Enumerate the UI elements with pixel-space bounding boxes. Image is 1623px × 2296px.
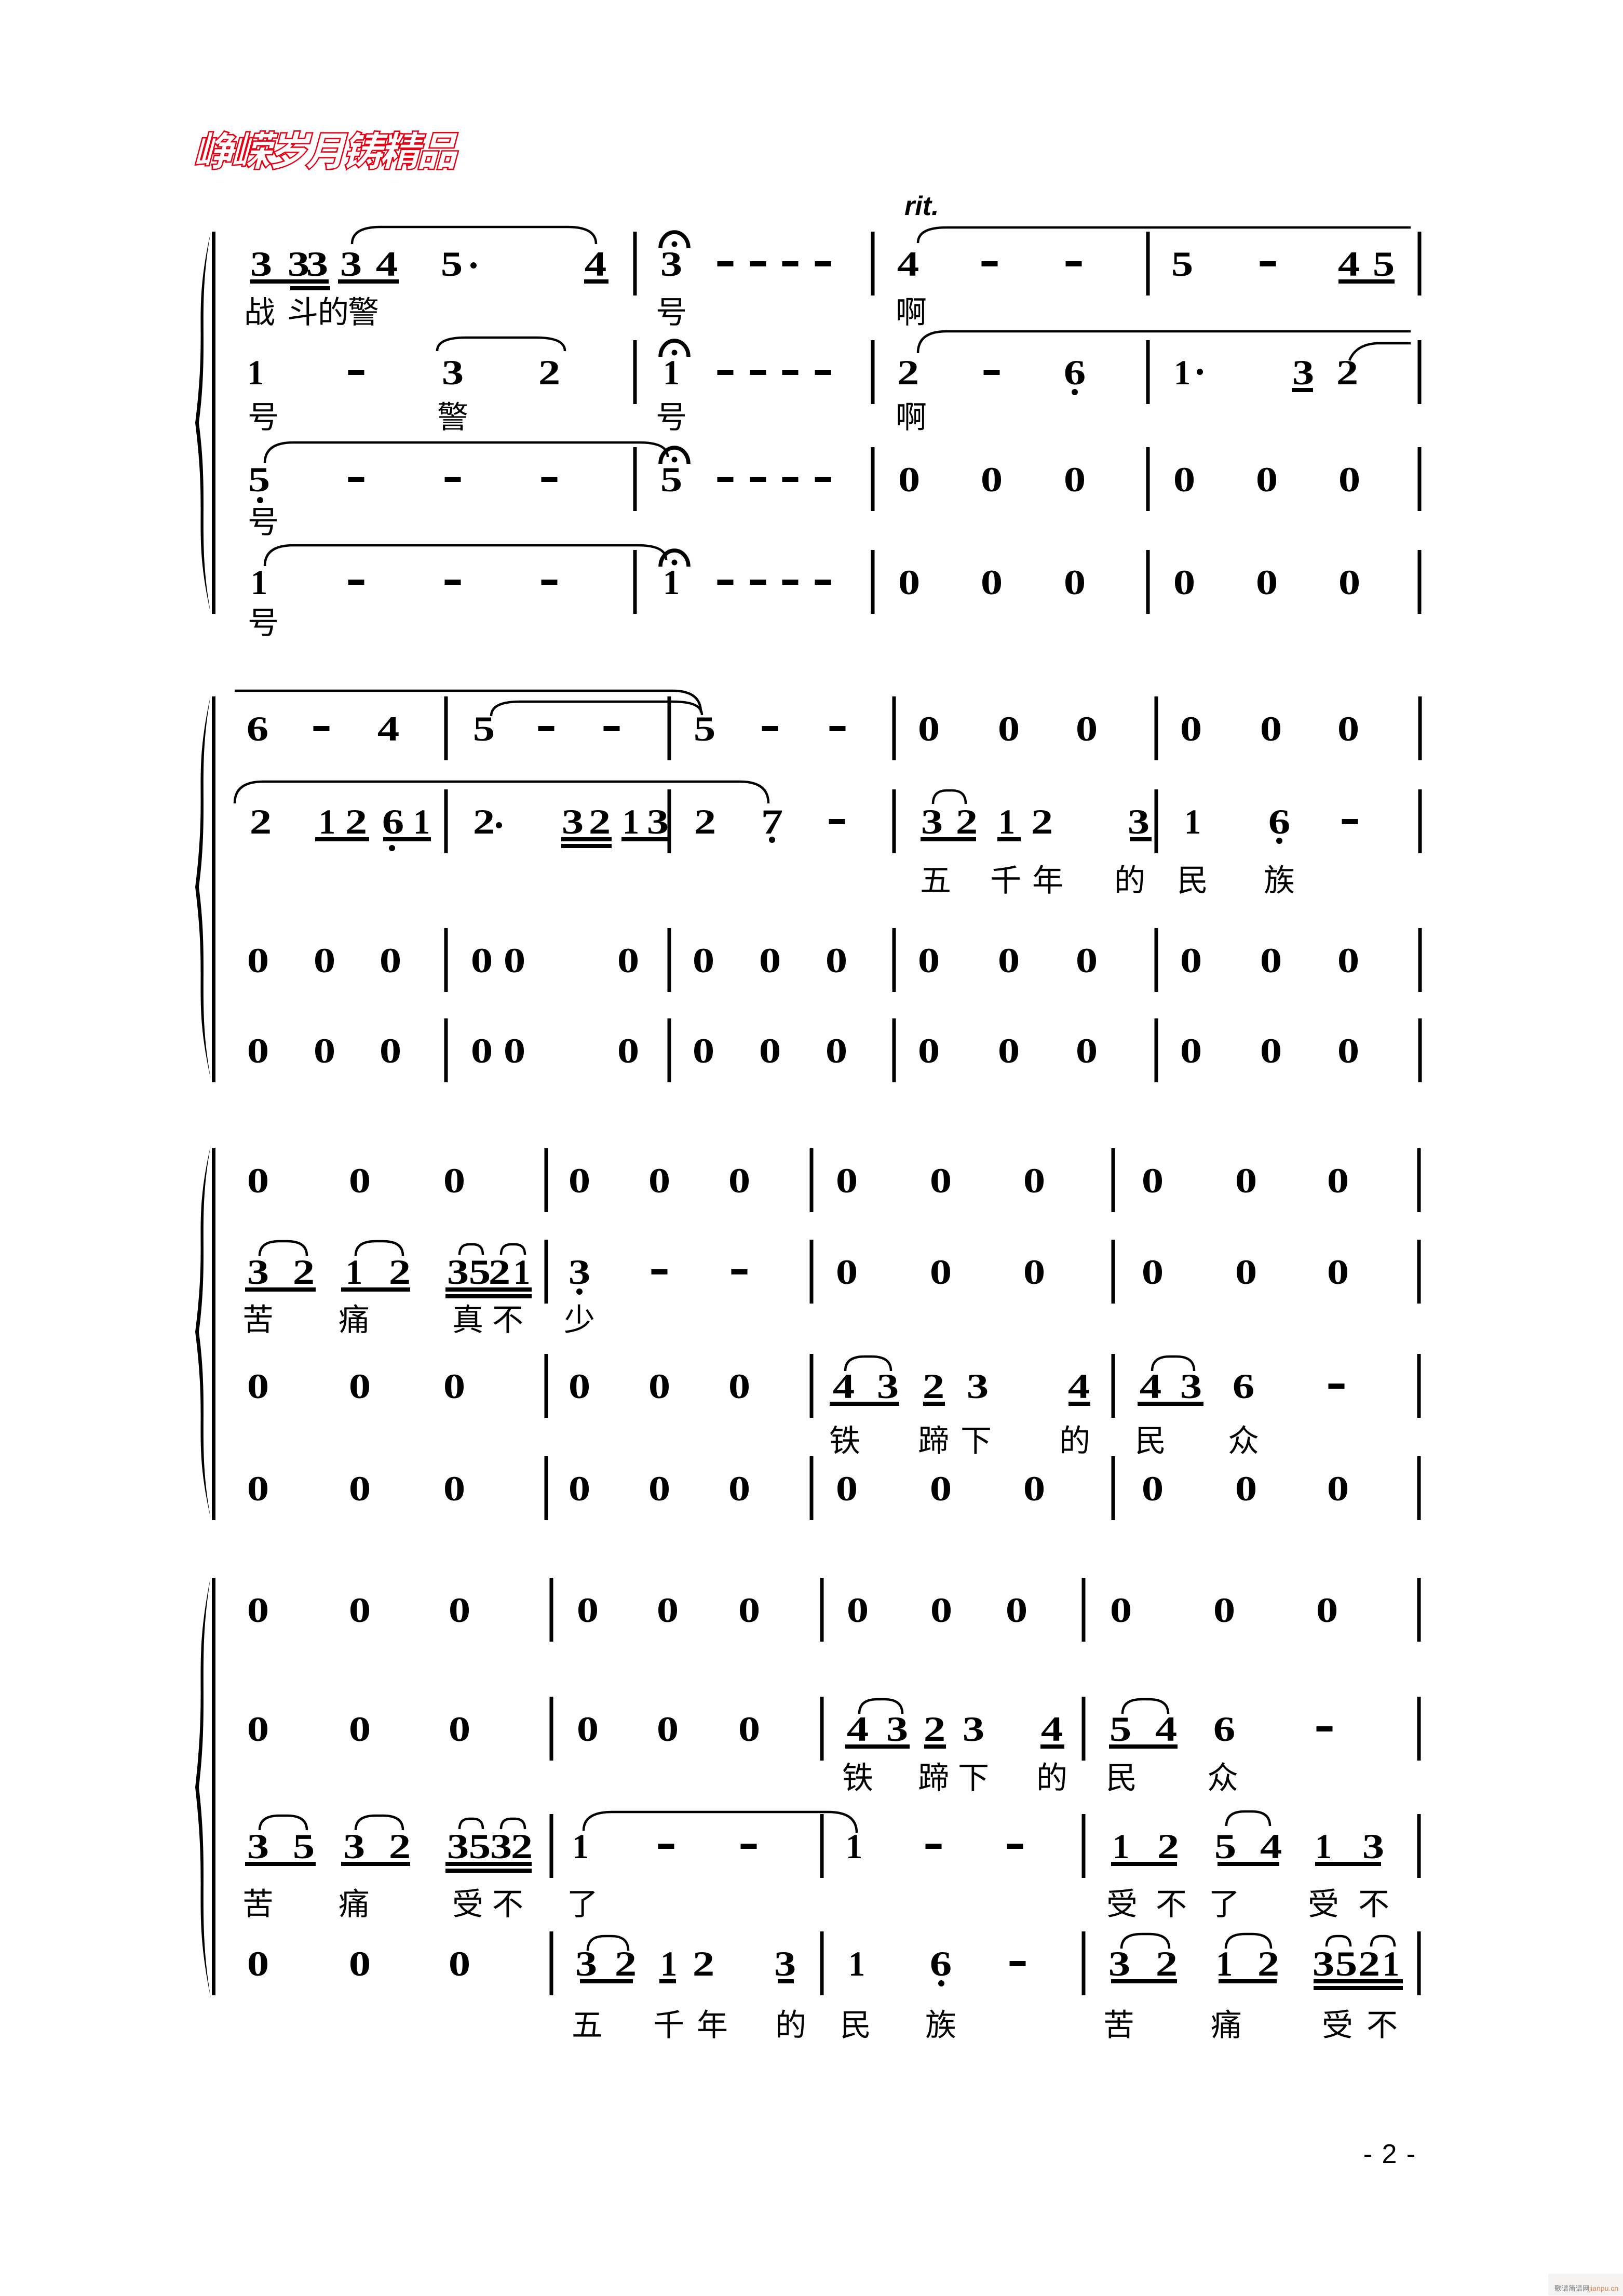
svg-text:5: 5 (441, 244, 463, 284)
svg-text:5: 5 (469, 1252, 491, 1292)
svg-text:0: 0 (898, 460, 920, 499)
svg-text:1: 1 (346, 1253, 362, 1292)
svg-text:2: 2 (389, 1827, 411, 1866)
svg-text:0: 0 (569, 1161, 590, 1200)
svg-text:1: 1 (251, 563, 267, 602)
svg-text:1: 1 (846, 1828, 862, 1867)
svg-text:0: 0 (918, 1031, 940, 1070)
svg-text:3: 3 (1128, 802, 1149, 841)
svg-text:0: 0 (759, 1031, 781, 1070)
svg-text:0: 0 (449, 1944, 470, 1983)
svg-text:2: 2 (345, 802, 367, 841)
svg-text:0: 0 (759, 941, 781, 980)
svg-text:0: 0 (247, 1944, 269, 1983)
svg-text:3: 3 (343, 1827, 365, 1866)
svg-text:3: 3 (575, 1944, 597, 1983)
svg-text:0: 0 (1006, 1590, 1027, 1630)
svg-text:0: 0 (449, 1590, 470, 1630)
svg-text:6: 6 (1213, 1709, 1235, 1749)
svg-text:5: 5 (694, 709, 715, 748)
svg-text:0: 0 (380, 1031, 401, 1070)
svg-text:0: 0 (657, 1709, 679, 1749)
svg-text:3: 3 (247, 1252, 269, 1292)
svg-text:5: 5 (1110, 1709, 1131, 1749)
svg-text:1: 1 (1383, 1945, 1399, 1984)
svg-text:0: 0 (1180, 941, 1202, 980)
svg-text:1: 1 (1184, 803, 1201, 842)
svg-text:6: 6 (382, 802, 404, 841)
svg-text:0: 0 (247, 1031, 269, 1070)
svg-text:3: 3 (1292, 353, 1314, 392)
svg-text:0: 0 (449, 1709, 470, 1749)
svg-text:0: 0 (471, 941, 493, 980)
svg-text:4: 4 (585, 244, 606, 284)
svg-text:0: 0 (998, 1031, 1020, 1070)
svg-text:3: 3 (1362, 1827, 1384, 1866)
svg-text:0: 0 (1337, 709, 1359, 748)
svg-text:0: 0 (1235, 1252, 1257, 1292)
svg-text:0: 0 (918, 709, 940, 748)
svg-text:2: 2 (538, 353, 560, 392)
svg-text:0: 0 (826, 1031, 847, 1070)
svg-text:4: 4 (376, 244, 398, 284)
svg-text:2: 2 (956, 802, 978, 841)
svg-text:3: 3 (1313, 1944, 1334, 1983)
svg-text:3: 3 (490, 1827, 512, 1866)
svg-text:0: 0 (1023, 1469, 1045, 1508)
svg-text:0: 0 (443, 1366, 465, 1406)
svg-text:0: 0 (1142, 1161, 1164, 1200)
svg-text:0: 0 (1180, 1031, 1202, 1070)
svg-text:0: 0 (349, 1469, 371, 1508)
svg-text:0: 0 (738, 1709, 760, 1749)
svg-text:jianpu.cn: jianpu.cn (1589, 2284, 1618, 2292)
svg-text:0: 0 (569, 1366, 590, 1406)
svg-text:0: 0 (930, 1469, 952, 1508)
svg-text:0: 0 (247, 1366, 269, 1406)
svg-text:0: 0 (1235, 1161, 1257, 1200)
svg-text:2: 2 (694, 802, 716, 841)
svg-text:0: 0 (349, 1944, 371, 1983)
svg-text:0: 0 (1064, 460, 1086, 499)
svg-text:1: 1 (660, 1945, 677, 1984)
svg-text:0: 0 (1142, 1252, 1164, 1292)
svg-text:1: 1 (1113, 1828, 1129, 1867)
svg-text:0: 0 (930, 1590, 952, 1630)
svg-text:0: 0 (1213, 1590, 1235, 1630)
svg-text:0: 0 (1076, 709, 1098, 748)
svg-text:3: 3 (340, 244, 362, 284)
svg-text:0: 0 (981, 460, 1003, 499)
svg-text:3: 3 (921, 802, 943, 841)
svg-text:3: 3 (660, 244, 682, 284)
svg-text:0: 0 (1337, 1031, 1359, 1070)
svg-text:0: 0 (443, 1469, 465, 1508)
svg-text:0: 0 (1076, 1031, 1098, 1070)
svg-text:2: 2 (473, 802, 495, 841)
svg-text:4: 4 (1155, 1709, 1177, 1749)
svg-text:2: 2 (693, 1944, 714, 1983)
svg-text:0: 0 (1338, 460, 1360, 499)
svg-text:0: 0 (1173, 562, 1195, 602)
svg-text:0: 0 (247, 1709, 269, 1749)
svg-text:0: 0 (349, 1366, 371, 1406)
svg-text:0: 0 (1316, 1590, 1338, 1630)
svg-text:1: 1 (413, 803, 430, 842)
svg-text:0: 0 (380, 941, 401, 980)
svg-text:3: 3 (647, 802, 669, 841)
svg-text:0: 0 (1256, 562, 1278, 602)
svg-text:0: 0 (1327, 1161, 1349, 1200)
svg-text:0: 0 (1260, 1031, 1282, 1070)
svg-text:1: 1 (848, 1945, 865, 1984)
svg-text:1: 1 (663, 354, 680, 393)
svg-text:4: 4 (377, 709, 399, 748)
svg-text:4: 4 (1140, 1366, 1161, 1406)
svg-text:0: 0 (981, 562, 1003, 602)
svg-text:0: 0 (349, 1161, 371, 1200)
svg-text:0: 0 (443, 1161, 465, 1200)
svg-text:5: 5 (469, 1827, 491, 1866)
svg-text:2: 2 (293, 1252, 315, 1292)
svg-text:3: 3 (306, 244, 328, 284)
svg-text:0: 0 (247, 1590, 269, 1630)
svg-text:6: 6 (1268, 802, 1290, 841)
svg-text:0: 0 (1064, 562, 1086, 602)
svg-text:0: 0 (569, 1469, 590, 1508)
svg-text:2: 2 (1031, 802, 1053, 841)
svg-text:2: 2 (250, 802, 272, 841)
svg-text:1: 1 (1216, 1945, 1233, 1984)
svg-text:0: 0 (836, 1469, 858, 1508)
svg-text:3: 3 (774, 1944, 796, 1983)
svg-text:2: 2 (1156, 1944, 1178, 1983)
svg-text:0: 0 (1327, 1252, 1349, 1292)
svg-text:0: 0 (1023, 1161, 1045, 1200)
svg-text:3: 3 (569, 1252, 590, 1292)
svg-text:0: 0 (918, 941, 940, 980)
svg-text:0: 0 (728, 1469, 750, 1508)
svg-text:0: 0 (738, 1590, 760, 1630)
svg-text:2: 2 (897, 353, 919, 392)
svg-text:0: 0 (898, 562, 920, 602)
svg-text:5: 5 (1214, 1827, 1236, 1866)
svg-text:5: 5 (293, 1827, 315, 1866)
svg-text:2: 2 (923, 1366, 944, 1406)
svg-text:0: 0 (504, 941, 525, 980)
svg-text:0: 0 (1256, 460, 1278, 499)
svg-text:0: 0 (1023, 1252, 1045, 1292)
svg-text:5: 5 (660, 460, 682, 499)
svg-text:0: 0 (998, 709, 1020, 748)
svg-text:2: 2 (589, 802, 611, 841)
svg-text:3: 3 (447, 1252, 469, 1292)
svg-text:0: 0 (1327, 1469, 1349, 1508)
svg-text:1: 1 (1315, 1828, 1332, 1867)
svg-text:2: 2 (389, 1252, 411, 1292)
svg-text:0: 0 (648, 1366, 670, 1406)
svg-text:5: 5 (1171, 244, 1193, 284)
svg-text:1: 1 (663, 563, 680, 602)
svg-text:1: 1 (1174, 354, 1191, 393)
svg-text:2: 2 (1358, 1944, 1380, 1983)
svg-text:0: 0 (349, 1590, 371, 1630)
svg-text:0: 0 (648, 1469, 670, 1508)
svg-text:3: 3 (562, 802, 584, 841)
svg-text:4: 4 (1068, 1366, 1090, 1406)
svg-text:6: 6 (930, 1944, 952, 1983)
svg-text:3: 3 (963, 1709, 984, 1749)
svg-text:0: 0 (314, 1031, 335, 1070)
svg-text:2: 2 (1336, 353, 1358, 392)
svg-text:3: 3 (442, 353, 464, 392)
svg-text:0: 0 (471, 1031, 493, 1070)
svg-text:0: 0 (1235, 1469, 1257, 1508)
svg-text:3: 3 (447, 1827, 469, 1866)
svg-text:1: 1 (572, 1828, 589, 1867)
svg-text:5: 5 (1335, 1944, 1357, 1983)
svg-text:3: 3 (1180, 1366, 1202, 1406)
svg-text:3: 3 (250, 244, 272, 284)
svg-text:0: 0 (1260, 709, 1282, 748)
svg-text:0: 0 (1173, 460, 1195, 499)
svg-text:4: 4 (833, 1366, 855, 1406)
svg-text:4: 4 (847, 1709, 869, 1749)
svg-text:7: 7 (761, 802, 783, 841)
svg-text:0: 0 (247, 1161, 269, 1200)
svg-text:0: 0 (836, 1161, 858, 1200)
svg-text:5: 5 (1373, 244, 1395, 284)
svg-text:3: 3 (877, 1366, 899, 1406)
svg-text:0: 0 (648, 1161, 670, 1200)
svg-text:2: 2 (489, 1252, 510, 1292)
svg-text:3: 3 (886, 1709, 908, 1749)
svg-text:1: 1 (513, 1253, 530, 1292)
svg-text:0: 0 (577, 1590, 599, 1630)
svg-text:2: 2 (511, 1827, 533, 1866)
svg-text:3: 3 (247, 1827, 269, 1866)
svg-text:0: 0 (657, 1590, 679, 1630)
svg-text:0: 0 (1260, 941, 1282, 980)
svg-text:2: 2 (615, 1944, 637, 1983)
svg-text:2: 2 (1157, 1827, 1179, 1866)
svg-text:4: 4 (897, 244, 919, 284)
svg-text:1: 1 (998, 803, 1015, 842)
svg-text:0: 0 (728, 1366, 750, 1406)
svg-text:0: 0 (504, 1031, 525, 1070)
svg-text:4: 4 (1338, 244, 1360, 284)
svg-text:0: 0 (1337, 941, 1359, 980)
svg-text:0: 0 (998, 941, 1020, 980)
svg-text:0: 0 (1076, 941, 1098, 980)
svg-text:0: 0 (693, 1031, 714, 1070)
svg-text:rit.: rit. (904, 191, 939, 221)
svg-text:6: 6 (1064, 353, 1086, 392)
svg-text:0: 0 (247, 1469, 269, 1508)
svg-text:1: 1 (623, 803, 639, 842)
svg-text:3: 3 (967, 1366, 989, 1406)
svg-text:0: 0 (1110, 1590, 1132, 1630)
svg-text:1: 1 (319, 803, 335, 842)
svg-text:2: 2 (1257, 1944, 1279, 1983)
svg-text:4: 4 (1041, 1709, 1063, 1749)
svg-text:0: 0 (577, 1709, 599, 1749)
svg-text:0: 0 (1338, 562, 1360, 602)
svg-text:6: 6 (1233, 1366, 1254, 1406)
svg-text:0: 0 (826, 941, 847, 980)
svg-text:0: 0 (728, 1161, 750, 1200)
svg-text:0: 0 (1142, 1469, 1164, 1508)
svg-text:- 2 -: - 2 - (1363, 2139, 1416, 2169)
svg-text:0: 0 (930, 1252, 952, 1292)
svg-text:3: 3 (1108, 1944, 1130, 1983)
svg-text:2: 2 (924, 1709, 945, 1749)
svg-text:0: 0 (693, 941, 714, 980)
svg-text:0: 0 (314, 941, 335, 980)
svg-text:0: 0 (617, 941, 639, 980)
svg-text:0: 0 (247, 941, 269, 980)
svg-text:0: 0 (1180, 709, 1202, 748)
svg-text:6: 6 (247, 709, 268, 748)
svg-text:0: 0 (349, 1709, 371, 1749)
svg-text:5: 5 (248, 460, 270, 499)
svg-text:4: 4 (1260, 1827, 1282, 1866)
svg-text:0: 0 (617, 1031, 639, 1070)
svg-text:0: 0 (847, 1590, 869, 1630)
svg-text:1: 1 (247, 354, 264, 393)
svg-text:0: 0 (930, 1161, 952, 1200)
svg-text:0: 0 (836, 1252, 858, 1292)
